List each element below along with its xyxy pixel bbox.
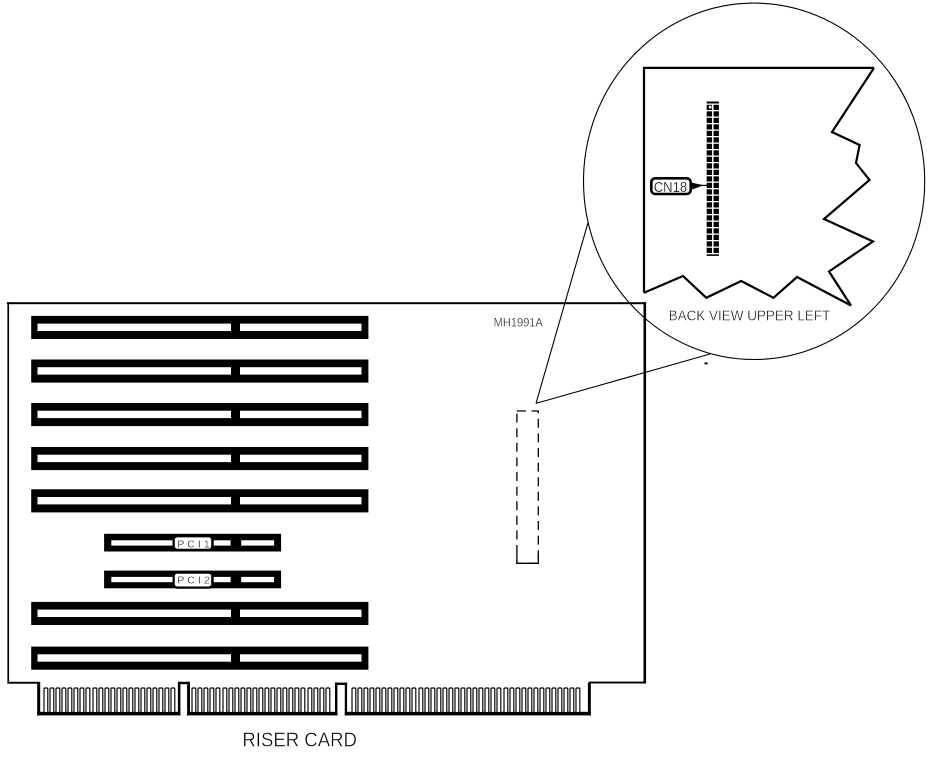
svg-text:MH1991A: MH1991A xyxy=(494,316,543,330)
svg-text:RISER CARD: RISER CARD xyxy=(242,729,357,751)
svg-text:BACK VIEW UPPER LEFT: BACK VIEW UPPER LEFT xyxy=(669,309,831,325)
svg-text:CN18: CN18 xyxy=(654,179,688,196)
svg-text:PCI2: PCI2 xyxy=(177,575,210,587)
svg-text:PCI1: PCI1 xyxy=(177,538,210,550)
